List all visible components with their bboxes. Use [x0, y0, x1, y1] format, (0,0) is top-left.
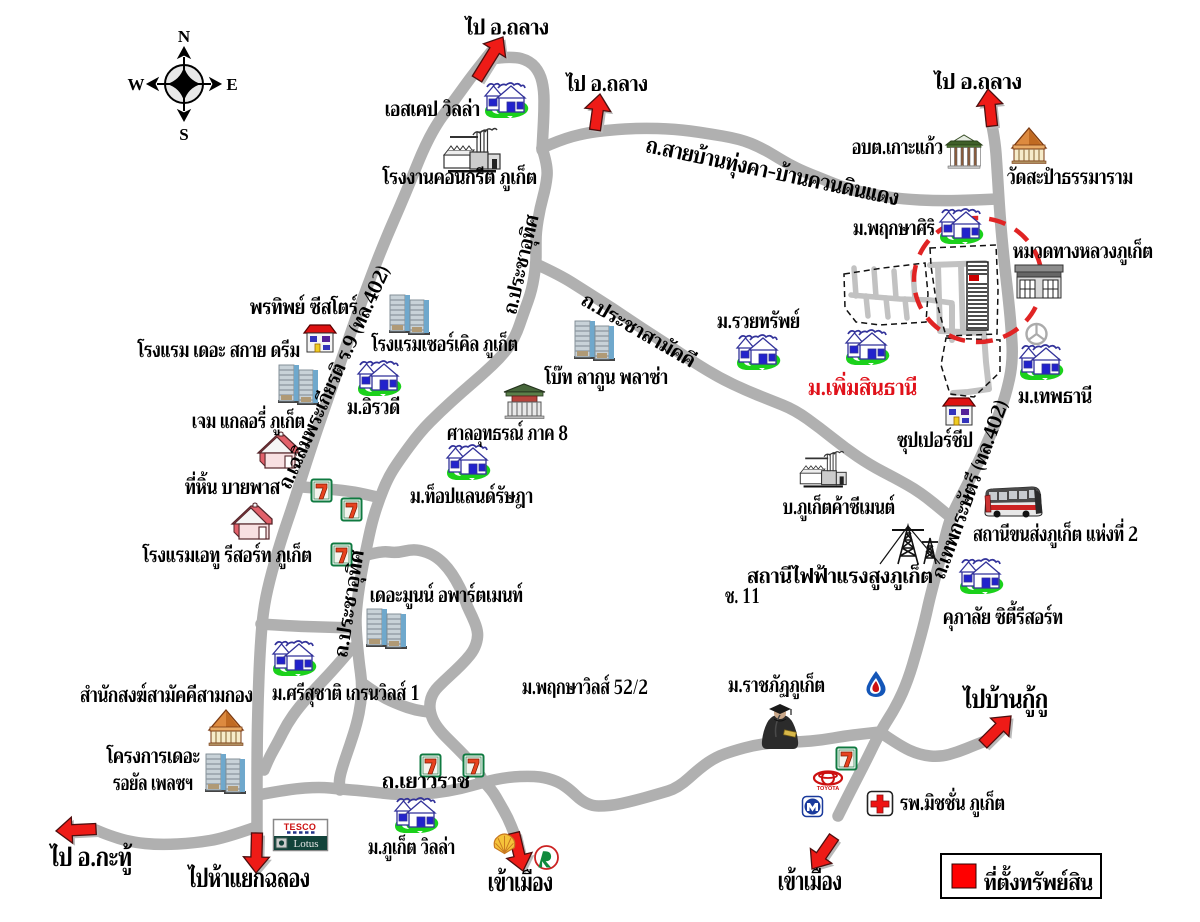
- svg-text:W: W: [128, 75, 145, 94]
- svg-text:S: S: [179, 125, 188, 144]
- svg-text:E: E: [226, 75, 237, 94]
- svg-text:N: N: [178, 27, 191, 46]
